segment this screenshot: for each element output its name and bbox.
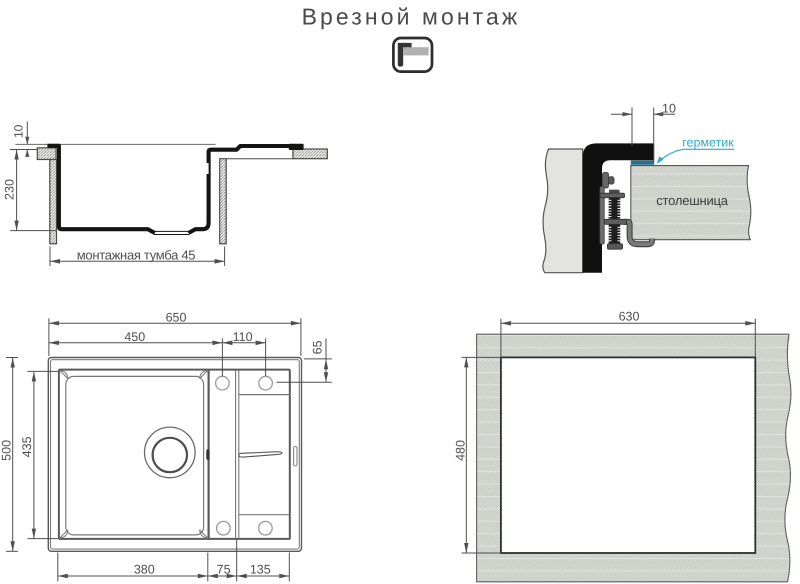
svg-text:10: 10 xyxy=(662,101,676,115)
svg-text:110: 110 xyxy=(233,330,253,344)
svg-text:Врезной монтаж: Врезной монтаж xyxy=(302,4,521,30)
svg-text:380: 380 xyxy=(134,563,155,577)
svg-text:75: 75 xyxy=(217,563,231,577)
svg-text:65: 65 xyxy=(311,340,325,354)
svg-text:650: 650 xyxy=(166,310,187,324)
svg-text:480: 480 xyxy=(454,440,468,461)
svg-text:135: 135 xyxy=(250,563,271,577)
svg-text:монтажная тумба 45: монтажная тумба 45 xyxy=(77,247,196,262)
svg-text:230: 230 xyxy=(3,179,17,200)
svg-text:герметик: герметик xyxy=(682,136,734,150)
svg-text:10: 10 xyxy=(12,124,26,138)
svg-text:630: 630 xyxy=(619,309,640,323)
svg-text:435: 435 xyxy=(20,436,34,457)
svg-text:столешница: столешница xyxy=(656,193,729,208)
svg-text:500: 500 xyxy=(0,440,14,461)
svg-text:450: 450 xyxy=(124,330,145,344)
